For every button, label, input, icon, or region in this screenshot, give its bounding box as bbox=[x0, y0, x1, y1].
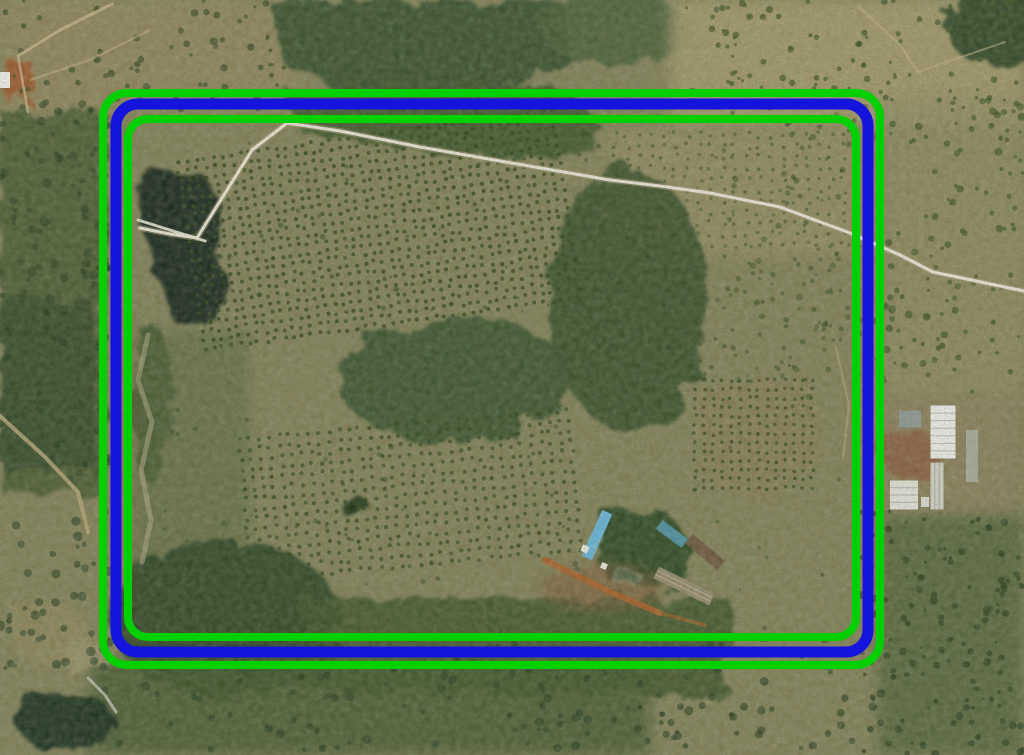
satellite-screenshot bbox=[0, 0, 1024, 755]
satellite-map-canvas bbox=[0, 0, 1024, 755]
